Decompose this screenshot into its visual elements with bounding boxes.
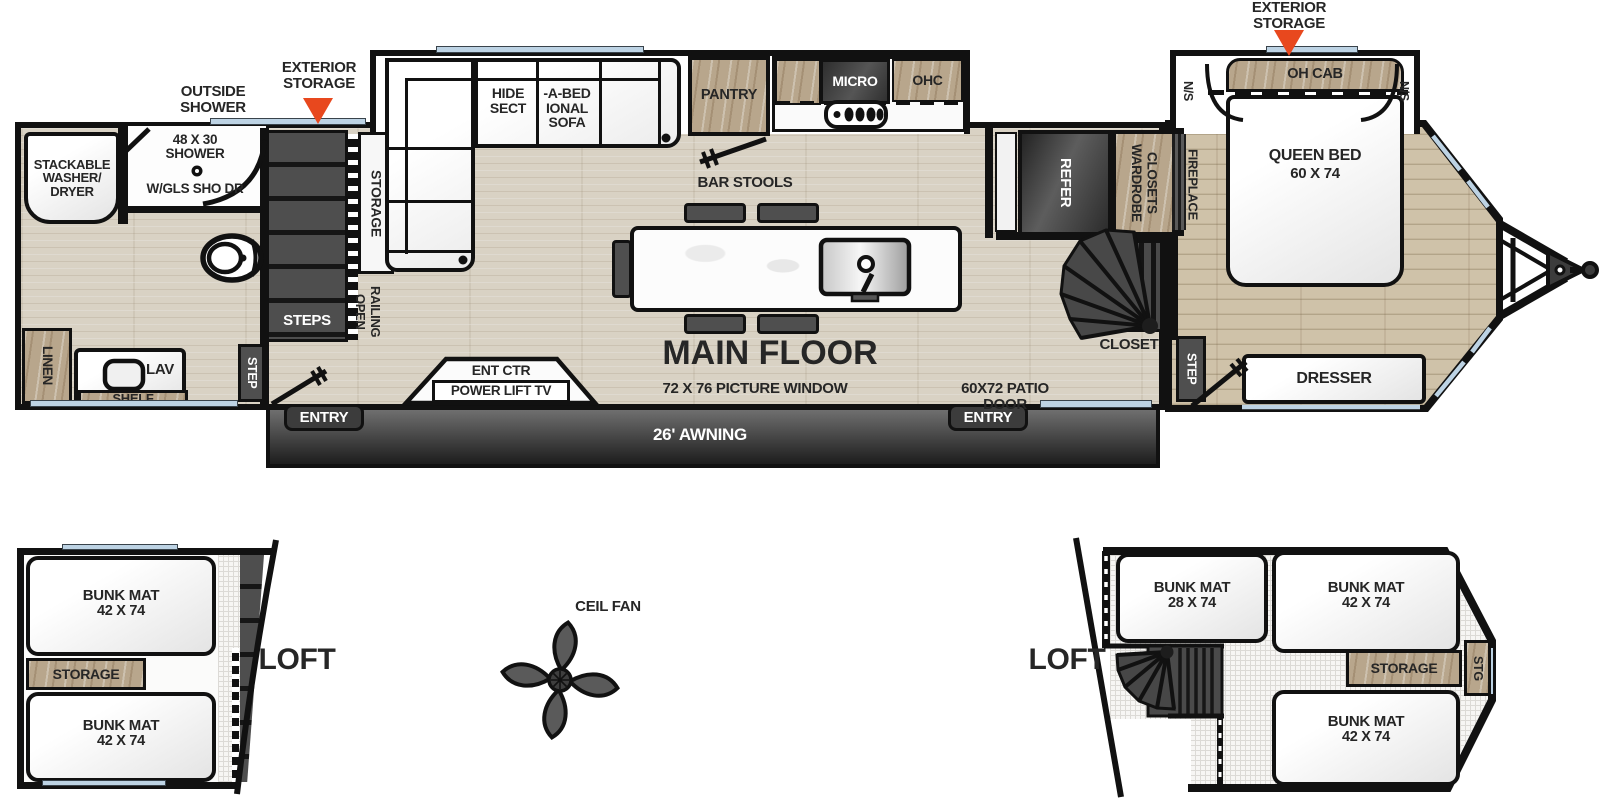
- window: [42, 780, 166, 786]
- washer-dryer: STACKABLE WASHER/ DRYER: [24, 132, 120, 224]
- overhead-cabinet: OHC: [892, 59, 963, 102]
- loft-right-title: LOFT: [1024, 644, 1110, 676]
- sofa-label-right: -A-BED IONAL SOFA: [536, 86, 598, 130]
- bunk-size: 42 X 74: [1302, 730, 1430, 745]
- bar-stool: [757, 314, 819, 334]
- fireplace-label: FIREPLACE: [1186, 136, 1203, 232]
- window: [436, 46, 644, 53]
- bar-stool: [684, 314, 746, 334]
- loft-right-stg: STG: [1464, 640, 1491, 696]
- outside-shower-callout: OUTSIDE SHOWER: [160, 84, 266, 116]
- dresser-label: DRESSER: [1296, 371, 1371, 388]
- bunk-label: BUNK MAT: [46, 718, 196, 734]
- sofa-seam: [389, 147, 472, 150]
- bunk-label: BUNK MAT: [46, 588, 196, 604]
- kitchen-island: [630, 226, 962, 312]
- refer-label: REFER: [1057, 158, 1073, 207]
- sofa-seam: [405, 78, 408, 254]
- power-lift-tv: POWER LIFT TV: [432, 380, 570, 403]
- exterior-storage-callout-right: EXTERIOR STORAGE: [1238, 0, 1340, 32]
- closet-label: CLOSET: [1092, 337, 1166, 353]
- wardrobe-closets: WARDROBE CLOSETS: [1112, 130, 1176, 236]
- linen-cabinet: LINEN: [22, 328, 72, 404]
- nightstand-left: N/S: [1181, 62, 1203, 120]
- fireplace: [1172, 134, 1186, 230]
- oh-cab-label: OH CAB: [1287, 67, 1342, 82]
- loft-left-title: LOFT: [252, 644, 342, 676]
- lav-label: LAV: [138, 362, 182, 378]
- power-lift-tv-label: POWER LIFT TV: [451, 384, 551, 398]
- loft-left-railing: [232, 648, 239, 782]
- patio-door-label: 60X72 PATIO DOOR: [938, 381, 1072, 413]
- window: [210, 118, 366, 125]
- bunk-size: 42 X 74: [1302, 596, 1430, 611]
- nightstand-right: N/S: [1397, 62, 1419, 120]
- picture-window-label: 72 X 76 PICTURE WINDOW: [630, 381, 880, 397]
- refrigerator: REFER: [1018, 130, 1112, 236]
- storage-label: STORAGE: [369, 170, 384, 237]
- bar-stools-label: BAR STOOLS: [685, 175, 805, 191]
- exterior-storage-marker-right: [1274, 30, 1304, 56]
- loft-steps-rear: [266, 130, 348, 342]
- step-box-rear: STEP: [238, 344, 265, 402]
- sofa-seam: [389, 250, 472, 253]
- sofa-seam: [405, 78, 661, 81]
- storage-label: STORAGE: [1371, 661, 1438, 676]
- window: [62, 544, 178, 550]
- dresser: DRESSER: [1242, 354, 1426, 404]
- main-floor-title: MAIN FLOOR: [630, 336, 910, 372]
- sofa-label-left: HIDE SECT: [482, 86, 534, 115]
- pantry: PANTRY: [688, 56, 770, 136]
- washer-dryer-label: STACKABLE WASHER/ DRYER: [29, 158, 115, 199]
- sofa-seam: [599, 62, 602, 145]
- micro-label: MICRO: [832, 74, 877, 89]
- stg-label: STG: [1471, 656, 1484, 681]
- wall-bedroom: [1160, 232, 1178, 340]
- step-label: STEP: [1184, 353, 1197, 384]
- entry-badge-left: ENTRY: [284, 404, 364, 431]
- stove-icon: [822, 98, 890, 132]
- wardrobe-label: WARDROBE CLOSETS: [1128, 137, 1159, 229]
- step-box-front: STEP: [1176, 336, 1206, 402]
- step-label: STEP: [245, 357, 258, 388]
- loft-left-storage: STORAGE: [26, 658, 146, 690]
- cabinet-end: [995, 132, 1017, 232]
- queen-bed: [1226, 95, 1404, 287]
- loft-right-storage: STORAGE: [1346, 650, 1462, 687]
- exterior-storage-callout-left: EXTERIOR STORAGE: [268, 60, 370, 92]
- bunk-label: BUNK MAT: [1302, 580, 1430, 596]
- ceiling-fan-label: CEIL FAN: [564, 599, 652, 615]
- loft-left-wall-left: [17, 548, 24, 789]
- storage-label: STORAGE: [53, 667, 120, 682]
- bunk-size: 42 X 74: [46, 604, 196, 619]
- steps-label: STEPS: [266, 313, 348, 329]
- queen-bed-label: QUEEN BED: [1240, 148, 1390, 165]
- bunk-size: 42 X 74: [46, 734, 196, 749]
- linen-label: LINEN: [40, 346, 54, 385]
- shower-door-label: W/GLS SHO DR: [130, 182, 260, 196]
- shower-label: SHOWER: [140, 147, 250, 161]
- awning-label: 26' AWNING: [620, 426, 780, 444]
- rv-floorplan: 26' AWNING ENTRY ENTRY STACKABLE WASHER/…: [0, 0, 1600, 803]
- oh-cab-dashed-line: [1208, 90, 1408, 95]
- sofa-vertical: [385, 58, 475, 272]
- sofa-seam: [658, 62, 661, 145]
- exterior-storage-marker-left: [303, 98, 333, 124]
- ceiling-fan-icon: [478, 598, 642, 762]
- bunk-size: 28 X 74: [1132, 596, 1252, 611]
- bunk-label: BUNK MAT: [1302, 714, 1430, 730]
- bar-stool: [757, 203, 819, 223]
- queen-size-label: 60 X 74: [1240, 166, 1390, 182]
- ent-ctr-label: ENT CTR: [445, 363, 557, 378]
- kitchen-cabinet: [775, 59, 821, 105]
- wall-shower-bottom: [124, 206, 266, 213]
- oh-cab: OH CAB: [1226, 58, 1404, 92]
- bunk-label: BUNK MAT: [1132, 580, 1252, 596]
- hitch-icon: [1500, 224, 1597, 316]
- sofa-seam: [475, 62, 478, 145]
- open-railing-label: OPEN RAILING: [352, 272, 394, 352]
- sofa-seam: [389, 200, 472, 203]
- pantry-label: PANTRY: [701, 88, 757, 103]
- bar-stool: [684, 203, 746, 223]
- window: [30, 400, 238, 407]
- ohc-label: OHC: [912, 73, 942, 88]
- sink-icon: [816, 232, 936, 308]
- entry-label: ENTRY: [300, 410, 349, 426]
- bar-stool: [612, 240, 632, 298]
- wall-kitchen-bedroom: [985, 128, 993, 238]
